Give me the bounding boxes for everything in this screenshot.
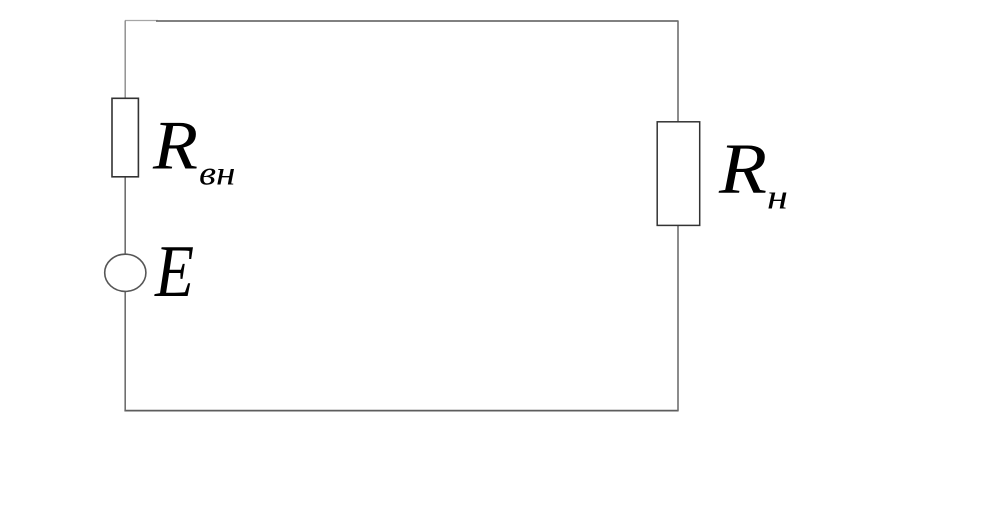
svg-text:вн: вн: [199, 156, 236, 193]
svg-text:R: R: [152, 108, 198, 185]
svg-text:R: R: [718, 129, 767, 209]
svg-text:E: E: [154, 231, 194, 313]
svg-text:н: н: [767, 178, 788, 217]
